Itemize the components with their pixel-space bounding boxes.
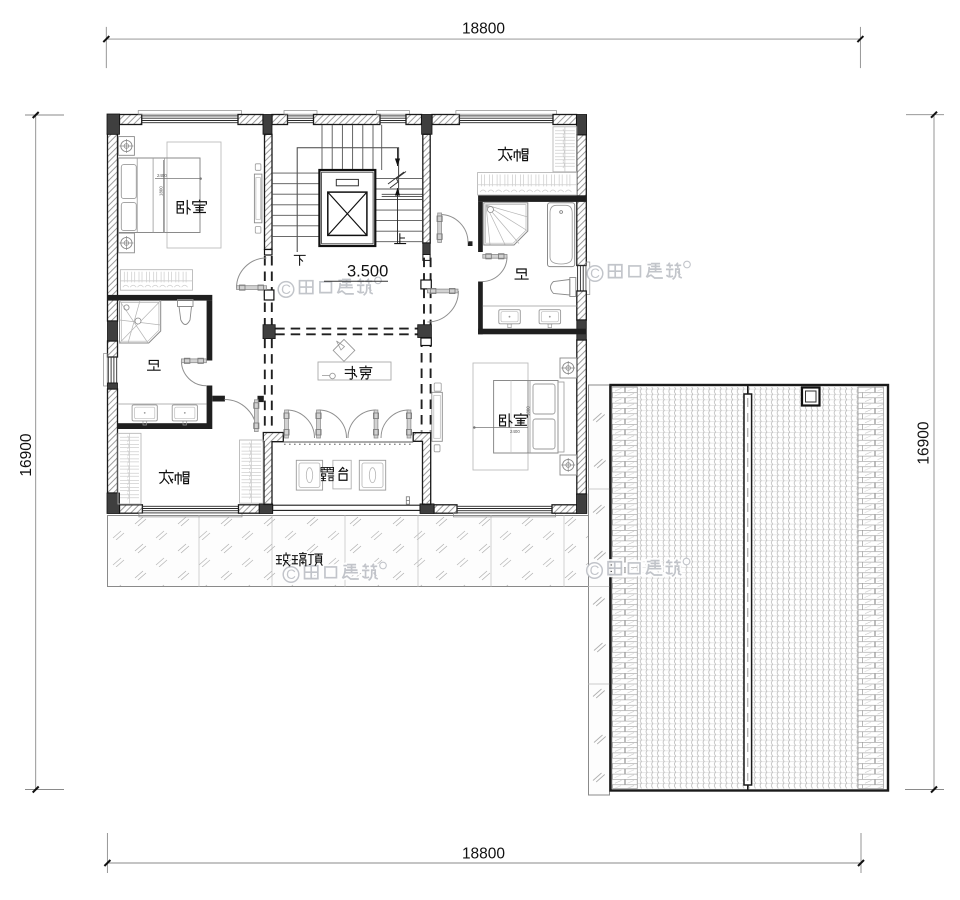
- svg-text:2400: 2400: [510, 429, 520, 434]
- svg-text:3.500: 3.500: [347, 263, 388, 281]
- svg-text:1800: 1800: [158, 186, 163, 196]
- svg-text:1800: 1800: [526, 406, 531, 416]
- svg-text:18800: 18800: [462, 846, 505, 863]
- svg-text:2400: 2400: [157, 173, 167, 178]
- svg-text:18800: 18800: [462, 21, 505, 38]
- svg-text:C: C: [590, 266, 600, 281]
- svg-text:C: C: [281, 282, 291, 297]
- svg-text:16900: 16900: [916, 421, 933, 464]
- svg-text:C: C: [590, 563, 600, 578]
- svg-text:16900: 16900: [18, 433, 35, 476]
- svg-text:C: C: [286, 567, 296, 582]
